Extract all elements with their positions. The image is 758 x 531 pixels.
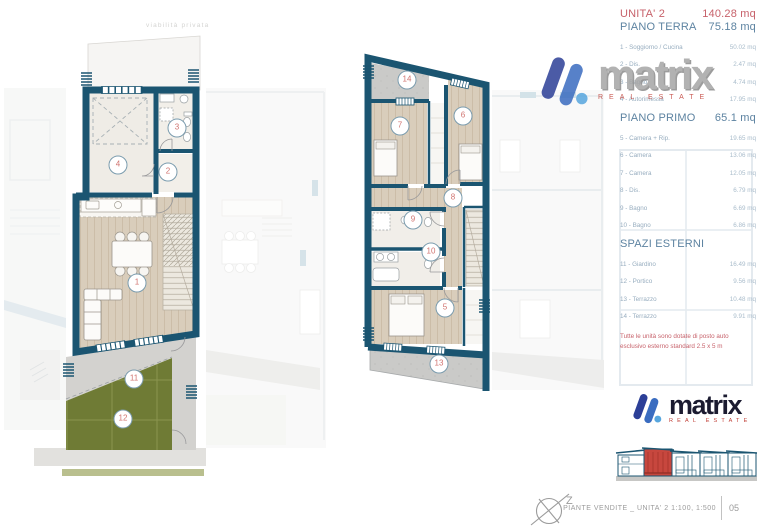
logo-name: matrix bbox=[669, 393, 751, 417]
piano-primo-title: PIANO PRIMO bbox=[620, 112, 696, 125]
parking-note-line2: esclusivo esterno standard 2.5 x 5 m bbox=[620, 343, 723, 350]
watermark-logo-name: matrix bbox=[598, 56, 712, 94]
room-row-value: 9.91 mq bbox=[733, 313, 756, 321]
room-label-7: 7 bbox=[391, 117, 410, 136]
hedge bbox=[62, 469, 204, 476]
room-row-value: 12.05 mq bbox=[730, 170, 756, 178]
room-row-value: 13.06 mq bbox=[730, 152, 756, 160]
parking-note-line1: Tutte le unità sono dotate di posto auto bbox=[620, 333, 729, 340]
matrix-logo-icon bbox=[536, 56, 592, 108]
room-row-value: 6.86 mq bbox=[733, 222, 756, 230]
unit-header: UNITA' 2 140.28 mq bbox=[620, 8, 756, 21]
room-label-3: 3 bbox=[168, 119, 187, 138]
room-row-label: 8 - Dis. bbox=[620, 187, 640, 195]
matrix-logo-icon bbox=[630, 393, 664, 425]
room-row-value: 2.47 mq bbox=[733, 61, 756, 69]
room-label-8: 8 bbox=[444, 189, 463, 208]
piano-terra-title: PIANO TERRA bbox=[620, 21, 697, 34]
room-row-value: 9.56 mq bbox=[733, 278, 756, 286]
piano-terra-area: 75.18 mq bbox=[709, 21, 756, 34]
piano-primo-area: 65.1 mq bbox=[715, 112, 756, 125]
parking-note: Tutte le unità sono dotate di posto auto… bbox=[620, 332, 756, 351]
room-row-label: 14 - Terrazzo bbox=[620, 313, 657, 321]
room-row: 6 - Camera13.06 mq bbox=[620, 152, 756, 160]
room-row: 11 - Giardino16.49 mq bbox=[620, 261, 756, 269]
room-row-value: 16.49 mq bbox=[730, 261, 756, 269]
sheet-caption: PIANTE VENDITE _ UNITA' 2 1:100, 1:500 bbox=[540, 505, 716, 512]
room-row-label: 10 - Bagno bbox=[620, 222, 651, 230]
sidewalk bbox=[34, 448, 206, 466]
room-row: 12 - Portico9.56 mq bbox=[620, 278, 756, 286]
room-label-14: 14 bbox=[398, 71, 417, 90]
footer-divider bbox=[721, 496, 722, 520]
room-row: 10 - Bagno6.86 mq bbox=[620, 222, 756, 230]
matrix-watermark: matrix REAL ESTATE bbox=[536, 56, 712, 108]
room-row: 13 - Terrazzo10.48 mq bbox=[620, 296, 756, 304]
room-label-1: 1 bbox=[128, 274, 147, 293]
room-label-2: 2 bbox=[159, 163, 178, 182]
spazi-esterni-header: SPAZI ESTERNI bbox=[620, 238, 756, 251]
spazi-esterni-title: SPAZI ESTERNI bbox=[620, 238, 704, 251]
room-row-value: 10.48 mq bbox=[730, 296, 756, 304]
first-floor-plan bbox=[363, 58, 490, 391]
room-row-label: 6 - Camera bbox=[620, 152, 652, 160]
room-label-9: 9 bbox=[404, 211, 423, 230]
faded-neighbor-mid bbox=[206, 88, 326, 448]
room-label-13: 13 bbox=[430, 355, 449, 374]
unit-label: UNITA' 2 bbox=[620, 8, 665, 21]
room-row-value: 6.79 mq bbox=[733, 187, 756, 195]
room-row: 7 - Camera12.05 mq bbox=[620, 170, 756, 178]
room-row-label: 11 - Giardino bbox=[620, 261, 656, 269]
room-row-value: 6.69 mq bbox=[733, 205, 756, 213]
faded-neighbor-left bbox=[4, 88, 66, 430]
room-row-label: 13 - Terrazzo bbox=[620, 296, 657, 304]
room-label-5: 5 bbox=[436, 299, 455, 318]
logo-tagline: REAL ESTATE bbox=[669, 418, 751, 424]
room-row: 9 - Bagno6.69 mq bbox=[620, 205, 756, 213]
watermark-logo-tagline: REAL ESTATE bbox=[598, 94, 712, 101]
room-row-label: 12 - Portico bbox=[620, 278, 652, 286]
sheet-number: 05 bbox=[729, 503, 739, 513]
room-label-6: 6 bbox=[454, 107, 473, 126]
road-label: viabilità privata bbox=[146, 22, 209, 29]
room-label-12: 12 bbox=[114, 410, 133, 429]
room-label-4: 4 bbox=[109, 156, 128, 175]
matrix-logo: matrix REAL ESTATE bbox=[630, 393, 751, 425]
room-row-value: 4.74 mq bbox=[733, 79, 756, 87]
room-row-value: 17.95 mq bbox=[730, 96, 756, 104]
unit-area: 140.28 mq bbox=[702, 8, 756, 21]
faded-neighbor-right bbox=[492, 90, 604, 390]
room-row: 8 - Dis.6.79 mq bbox=[620, 187, 756, 195]
piano-primo-header: PIANO PRIMO 65.1 mq bbox=[620, 112, 756, 125]
building-elevation bbox=[616, 448, 757, 481]
room-row-label: 5 - Camera + Rip. bbox=[620, 135, 670, 143]
room-row: 5 - Camera + Rip.19.65 mq bbox=[620, 135, 756, 143]
room-row-value: 50.02 mq bbox=[730, 44, 756, 52]
piano-terra-header: PIANO TERRA 75.18 mq bbox=[620, 21, 756, 34]
room-row: 14 - Terrazzo9.91 mq bbox=[620, 313, 756, 321]
room-row-label: 7 - Camera bbox=[620, 170, 652, 178]
room-label-10: 10 bbox=[422, 243, 441, 262]
plan-sheet: viabilità privata 1 2 3 4 11 12 5 6 7 8 … bbox=[0, 0, 758, 531]
room-label-11: 11 bbox=[125, 370, 144, 389]
room-row-label: 9 - Bagno bbox=[620, 205, 647, 213]
room-row-value: 19.65 mq bbox=[730, 135, 756, 143]
